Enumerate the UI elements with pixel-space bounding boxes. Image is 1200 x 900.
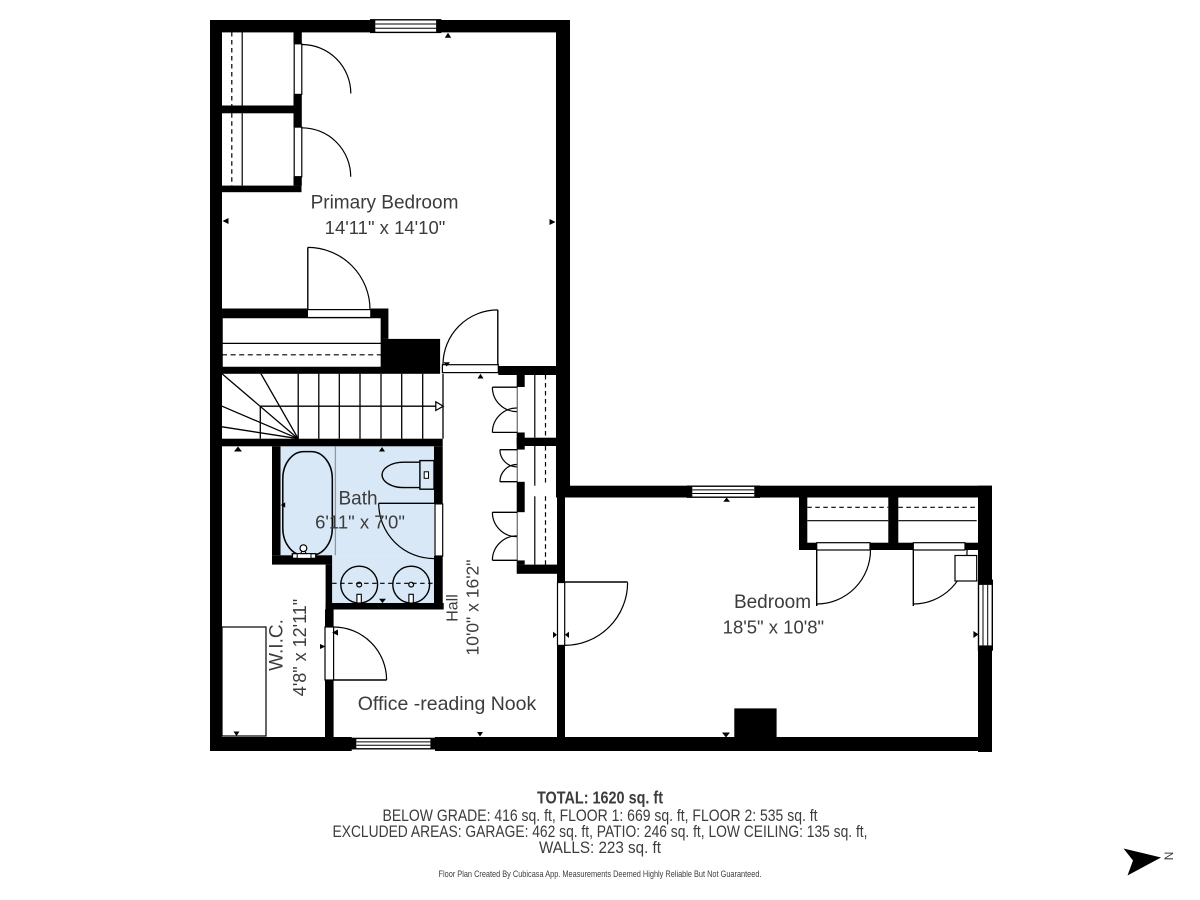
svg-text:W.I.C.: W.I.C. <box>267 619 288 671</box>
svg-text:18'5" x 10'8": 18'5" x 10'8" <box>723 617 824 638</box>
svg-text:4'8" x 12'11": 4'8" x 12'11" <box>290 599 310 696</box>
svg-text:TOTAL: 1620 sq. ft: TOTAL: 1620 sq. ft <box>537 788 663 808</box>
svg-text:Hall: Hall <box>445 594 462 622</box>
svg-text:10'0" x 16'2": 10'0" x 16'2" <box>463 560 483 656</box>
svg-text:6'11" x 7'0": 6'11" x 7'0" <box>315 512 405 533</box>
svg-text:N: N <box>1162 852 1176 861</box>
svg-text:Floor Plan Created By Cubicasa: Floor Plan Created By Cubicasa App. Meas… <box>439 869 762 880</box>
svg-text:Primary Bedroom: Primary Bedroom <box>311 193 459 214</box>
svg-text:WALLS: 223 sq. ft: WALLS: 223 sq. ft <box>539 839 661 857</box>
svg-text:14'11" x 14'10": 14'11" x 14'10" <box>325 217 446 238</box>
svg-text:Bedroom: Bedroom <box>734 592 811 613</box>
svg-text:Office -reading Nook: Office -reading Nook <box>358 693 537 715</box>
svg-text:Bath: Bath <box>338 489 377 510</box>
